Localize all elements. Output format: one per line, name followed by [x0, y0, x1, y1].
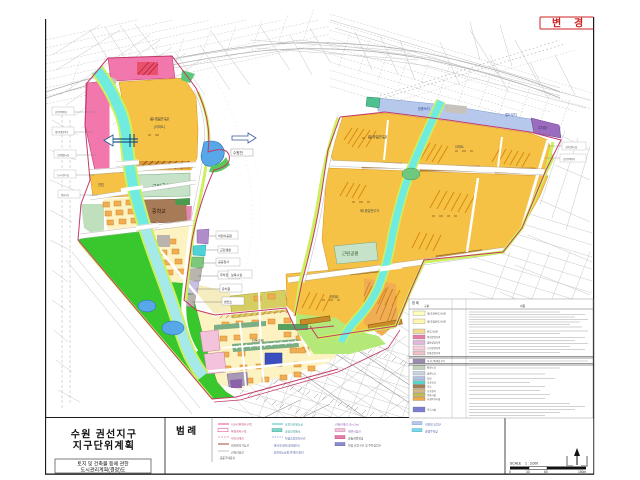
svg-text:· 대지내 공지(공개공지): · 대지내 공지(공개공지)	[272, 444, 300, 448]
svg-text:도시관리계획(결정)도: 도시관리계획(결정)도	[81, 467, 126, 474]
svg-text:보육시설: 보육시설	[231, 272, 242, 277]
svg-text:공공청사: 공공청사	[427, 389, 437, 393]
svg-text:SCALE: SCALE	[510, 462, 522, 466]
svg-text:토지 및 건축물 등에 관한: 토지 및 건축물 등에 관한	[77, 461, 129, 468]
svg-text:주차장: 주차장	[220, 272, 229, 277]
svg-text:공영주차장: 공영주차장	[425, 430, 438, 434]
svg-text:수원천: 수원천	[233, 150, 243, 155]
svg-text:준주거지역: 준주거지역	[427, 330, 438, 334]
svg-text:0: 0	[509, 470, 511, 474]
svg-text:아파트: 아파트	[455, 144, 464, 149]
svg-text:1 : 3,000: 1 : 3,000	[525, 462, 538, 466]
svg-text:변전소: 변전소	[224, 299, 233, 304]
svg-text:하천: 하천	[427, 377, 431, 381]
svg-text:철도부지: 철도부지	[505, 112, 517, 117]
svg-text:내용: 내용	[520, 304, 526, 308]
svg-text:제1종전용주거지역: 제1종전용주거지역	[427, 312, 446, 316]
svg-text:차량출입불허구간: 차량출입불허구간	[285, 437, 306, 441]
svg-text:제1종일반주거: 제1종일반주거	[360, 208, 379, 213]
svg-text:공공공지: 공공공지	[427, 381, 436, 385]
svg-text:· 공동주택용지: · 공동주택용지	[218, 456, 236, 460]
svg-text:경: 경	[574, 17, 583, 30]
svg-text:주차장: 주차장	[538, 125, 547, 130]
svg-text:보행자전용도로: 보행자전용도로	[285, 423, 303, 427]
svg-text:사회복지시설: 사회복지시설	[427, 397, 440, 401]
svg-text:지구단위계획구역: 지구단위계획구역	[231, 423, 252, 427]
svg-text:공동개발권장: 공동개발권장	[348, 437, 364, 441]
svg-text:근린공원: 근린공원	[342, 250, 359, 256]
svg-text:30: 30	[526, 470, 530, 474]
svg-text:아파트: 아파트	[330, 294, 339, 299]
svg-text:일반상업지역: 일반상업지역	[427, 341, 440, 345]
svg-text:제1종일반주거지역: 제1종일반주거지역	[427, 320, 446, 324]
svg-text:변: 변	[552, 17, 561, 30]
svg-text:특별계획구역: 특별계획구역	[231, 430, 247, 434]
svg-text:공공청사: 공공청사	[218, 259, 229, 264]
svg-text:대지분할가능선: 대지분할가능선	[231, 444, 249, 448]
svg-text:수원 권선지구: 수원 권선지구	[71, 428, 137, 441]
svg-text:중학교: 중학교	[152, 208, 166, 215]
svg-text:획지경계선: 획지경계선	[231, 437, 244, 441]
svg-text:완충녹지: 완충녹지	[418, 106, 430, 111]
svg-text:경관녹지: 경관녹지	[427, 372, 436, 376]
svg-text:단독주택: 단독주택	[252, 338, 264, 343]
svg-text:60: 60	[544, 470, 548, 474]
svg-text:완충녹지: 완충녹지	[427, 366, 436, 370]
svg-text:(아파트): (아파트)	[154, 124, 165, 129]
svg-text:근린상업지역: 근린상업지역	[427, 346, 440, 350]
svg-text:구분: 구분	[424, 304, 430, 308]
svg-text:중심상업지역: 중심상업지역	[427, 335, 440, 339]
svg-text:유치원: 유치원	[222, 286, 231, 291]
svg-text:근린생활: 근린생활	[220, 247, 231, 252]
svg-text:· 보행자도로와 연계한 공지: · 보행자도로와 연계한 공지	[272, 451, 304, 455]
svg-text:차량 출입구간 및 주차장입구: 차량 출입구간 및 주차장입구	[348, 444, 382, 448]
svg-text:150m: 150m	[578, 470, 587, 474]
svg-text:지하철 출입구: 지하철 출입구	[425, 423, 442, 427]
svg-text:범 례: 범 례	[176, 425, 196, 437]
svg-text:건축한계선 (3m,2m): 건축한계선 (3m,2m)	[335, 423, 359, 427]
svg-text:범 례: 범 례	[412, 300, 419, 305]
svg-text:지구단위계획: 지구단위계획	[73, 439, 135, 452]
svg-text:벽면지정선: 벽면지정선	[348, 430, 361, 434]
svg-text:어린이공원: 어린이공원	[218, 233, 232, 238]
svg-text:종교시설: 종교시설	[427, 408, 436, 412]
svg-text:건축지정선: 건축지정선	[231, 451, 244, 455]
svg-text:유통상업지역: 유통상업지역	[427, 351, 440, 355]
svg-text:문화시설: 문화시설	[427, 393, 436, 397]
svg-text:공공보행통로: 공공보행통로	[285, 430, 301, 434]
svg-text:지구단위계획구역: 지구단위계획구역	[427, 359, 445, 363]
svg-text:연립: 연립	[98, 182, 104, 187]
